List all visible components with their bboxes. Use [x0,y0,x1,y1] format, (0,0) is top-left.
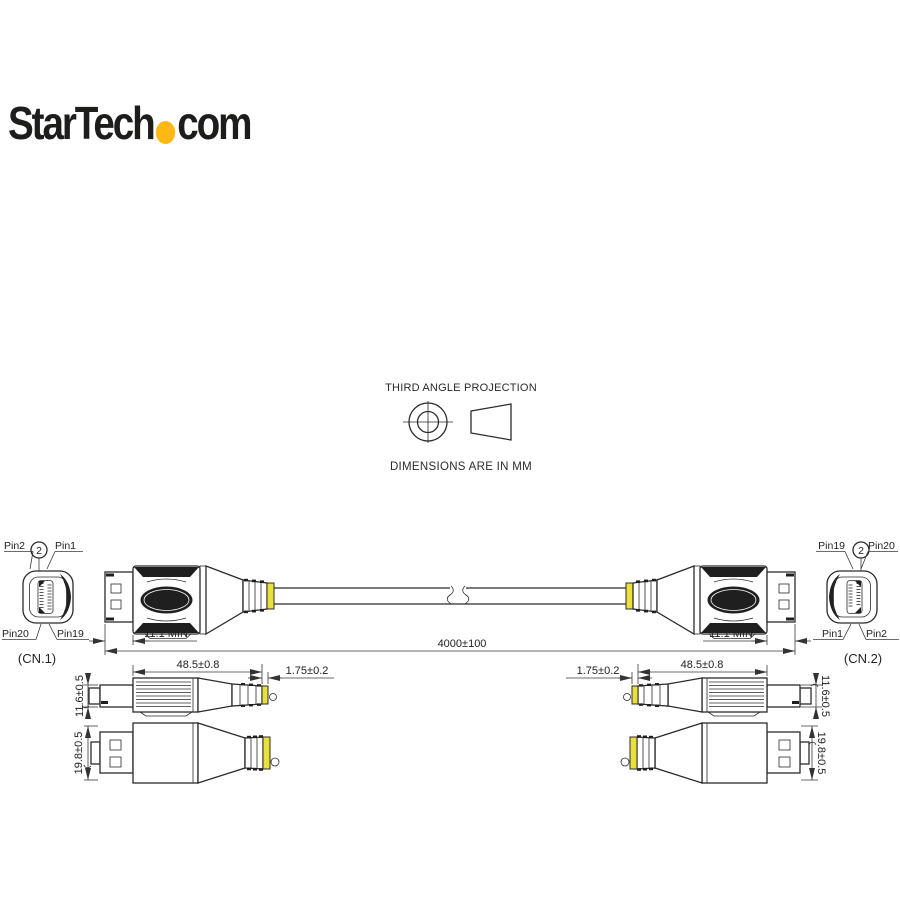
startech-logo: StarTech com [8,100,250,146]
top-detail-left: 19.8±0.5 [73,723,279,783]
dim-band-left: 1.75±0.2 [286,665,329,677]
technical-drawing-page: StarTech com THIRD ANGLE PROJECTION DIME… [0,0,900,900]
units-note: DIMENSIONS ARE IN MM [336,461,586,473]
cn1-pin-bottom-right: Pin19 [57,628,84,640]
cn2-pin-bottom-left: Pin1 [822,628,843,640]
cn1-front-view: 2 Pin2 Pin1 Pin20 Pin19 (CN.1) [2,540,89,666]
overmold-brand-left: StarTech.com [149,598,184,604]
logo-dot-icon [156,121,175,144]
dim-height-top-left: 19.8±0.5 [73,732,85,775]
logo-text-prefix: StarTech [8,100,154,146]
dim-band-right: 1.75±0.2 [577,665,620,677]
cable-break-icon [447,586,453,604]
frustum-symbol [471,404,511,440]
cn2-pin-top-left: Pin19 [818,540,845,552]
dim-plug-right: 11.1 MIN [709,628,753,640]
cn1-pin-bottom-left: Pin20 [2,628,29,640]
strain-band-right [626,583,633,609]
strain-band-left [267,583,274,609]
cable-assembly-side-view: StarTech.com [105,566,795,639]
overmold-brand-right: StarTech.com [716,596,751,602]
side-detail-left: 48.5±0.8 1.75±0.2 11.6±0.5 [74,659,334,717]
side-detail-right: 48.5±0.8 1.75±0.2 11.6±0.5 [566,659,831,717]
cn2-callout: 2 [858,545,864,557]
third-angle-projection-label: THIRD ANGLE PROJECTION [340,382,582,394]
dim-height-top-right: 19.8±0.5 [815,732,827,775]
cn2-label: (CN.2) [844,651,882,666]
cn2-pin-top-right: Pin20 [868,540,895,552]
cn1-label: (CN.1) [18,651,56,666]
dim-plug-left: 11.1 MIN [144,628,188,640]
cn2-front-view: 2 Pin19 Pin20 Pin1 Pin2 (CN.2) [813,540,899,666]
dim-length-right: 48.5±0.8 [681,659,724,671]
logo-text-suffix: com [177,100,250,146]
cn1-callout: 2 [36,545,42,557]
dim-length-left: 48.5±0.8 [177,659,220,671]
cable-drawing: 2 Pin2 Pin1 Pin20 Pin19 (CN.1) [0,520,900,820]
cn1-pin-top-right: Pin1 [55,540,76,552]
cn2-pin-bottom-right: Pin2 [866,628,887,640]
third-angle-projection-icon [403,400,515,444]
dim-height-side-right: 11.6±0.5 [819,675,831,717]
dim-height-side-left: 11.6±0.5 [74,675,86,717]
dim-cable-length: 4000±100 [438,638,487,650]
cn1-pin-top-left: Pin2 [4,540,25,552]
top-detail-right: 19.8±0.5 [621,723,827,783]
